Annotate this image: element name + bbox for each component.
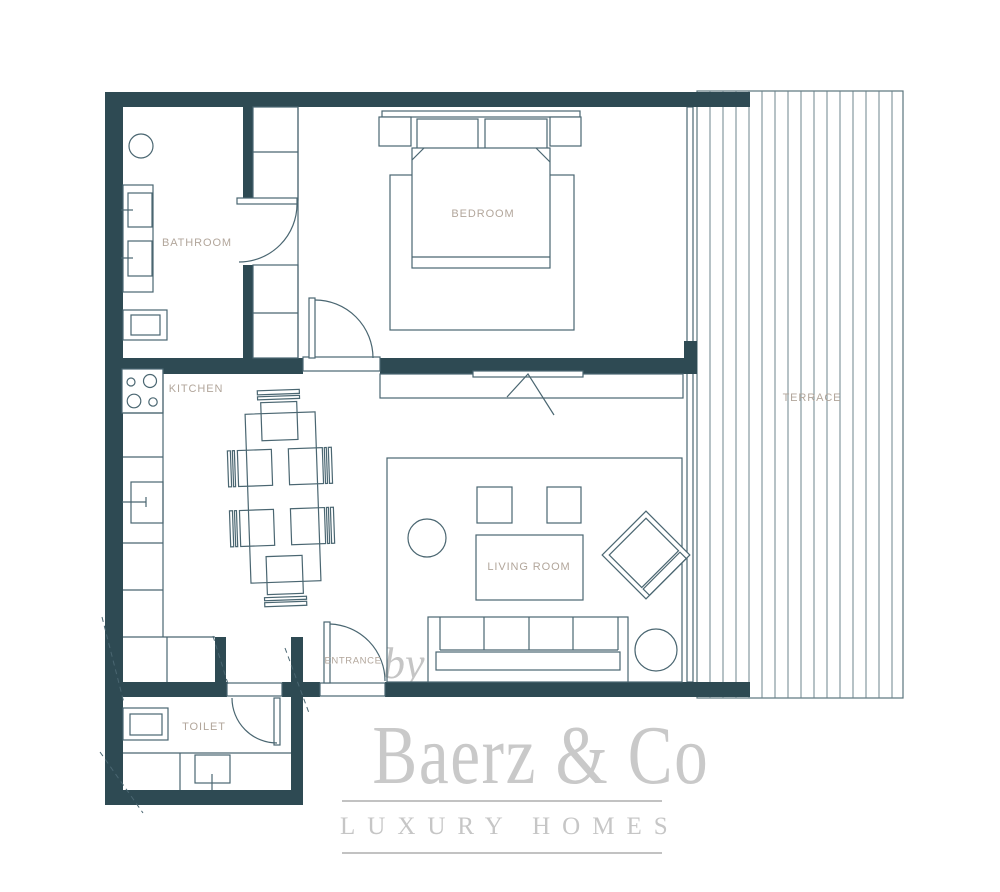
bedroom-furniture (379, 111, 581, 330)
toilet-door (232, 698, 280, 745)
label-living-room: LIVING ROOM (487, 561, 570, 573)
label-bathroom: BATHROOM (162, 237, 232, 249)
label-entrance: ENTRANCE (324, 656, 381, 667)
living-room-furniture (380, 371, 690, 682)
sofa (428, 617, 628, 682)
floor-plan: by Baerz & Co LUXURY HOMES (0, 0, 1000, 892)
door-thresholds (227, 357, 385, 696)
dining-set (225, 388, 336, 607)
bedroom-door (309, 298, 373, 358)
side-table (635, 629, 677, 671)
bathroom-fixtures (121, 134, 167, 340)
label-terrace: TERRACE (783, 392, 842, 404)
label-kitchen: KITCHEN (169, 383, 224, 395)
closets (253, 107, 298, 358)
bathroom-door (237, 198, 297, 262)
kitchen-counter (122, 369, 215, 682)
terrace-window-wall (687, 107, 693, 682)
entrance-door (324, 622, 385, 683)
armchair (602, 511, 690, 599)
label-toilet: TOILET (182, 721, 226, 733)
floor-plan-drawing (0, 0, 1000, 892)
label-bedroom: BEDROOM (451, 208, 514, 220)
